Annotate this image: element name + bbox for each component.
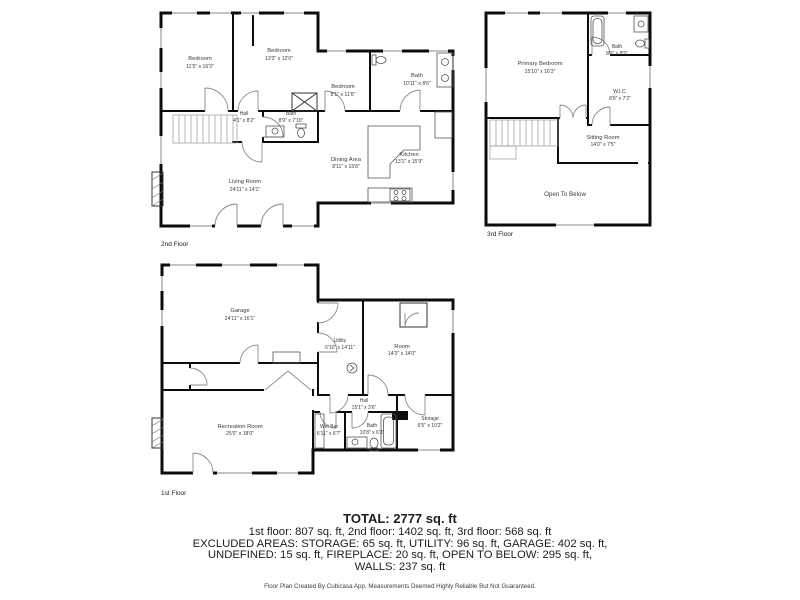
room-label-garage-name: Garage bbox=[230, 308, 249, 314]
room-label-room-dims: 14'3" x 14'0" bbox=[388, 351, 416, 357]
bath-fixtures-2f-icon bbox=[266, 53, 453, 138]
doors-2f bbox=[205, 88, 420, 226]
room-label-bath1-name: Bath bbox=[367, 423, 378, 429]
floor-plan-page: Bedroom 11'5" x 16'3" Bedroom 13'3" x 12… bbox=[0, 0, 800, 600]
doors-1f bbox=[190, 303, 425, 473]
stairs-2f-icon bbox=[173, 115, 237, 143]
interior-walls-2f bbox=[161, 13, 453, 142]
floor-plan-3rd-floor: Primary Bedroom 15'10" x 16'3" Bath 8'9"… bbox=[480, 8, 658, 251]
room-label-recreation-name: Recreation Room bbox=[217, 424, 262, 430]
room-label-bedroom1-name: Bedroom bbox=[188, 56, 212, 62]
room-label-bedroom2-dims: 13'3" x 12'0" bbox=[265, 56, 293, 62]
windows-2f bbox=[161, 13, 453, 226]
french-doors-icon bbox=[265, 371, 311, 390]
exterior-walls-2f bbox=[161, 13, 453, 226]
room-labels-2f: Bedroom 11'5" x 16'3" Bedroom 13'3" x 12… bbox=[186, 48, 431, 193]
exterior-walls-1f bbox=[162, 265, 453, 473]
floor-label-3rd: 3rd Floor bbox=[487, 231, 514, 238]
room-label-bedroom3-name: Bedroom bbox=[331, 84, 355, 90]
room-label-living-dims: 24'11" x 14'1" bbox=[230, 187, 261, 193]
total-area-line: TOTAL: 2777 sq. ft bbox=[0, 511, 800, 526]
room-label-dining-name: Dining Area bbox=[331, 157, 362, 163]
room-label-bath-hall-dims: 8'9" x 7'10" bbox=[279, 118, 304, 124]
interior-walls-3f bbox=[486, 13, 650, 163]
credit-line: Floor Plan Created By Cubicasa App. Meas… bbox=[0, 583, 800, 590]
stairs-3f-icon bbox=[490, 120, 558, 159]
room-label-wetbar-dims: 6'11" x 6'7" bbox=[317, 431, 341, 437]
room-label-sitting-dims: 14'0" x 7'5" bbox=[590, 142, 615, 148]
room-label-room-name: Room bbox=[394, 344, 410, 350]
room-label-sitting-name: Sitting Room bbox=[586, 135, 619, 141]
room-label-hall2-dims: 4'1" x 8'2" bbox=[233, 118, 255, 124]
room-label-bedroom1-dims: 11'5" x 16'3" bbox=[186, 64, 214, 70]
room-label-open-to-below: Open To Below bbox=[544, 191, 586, 198]
room-label-bath-hall-name: Bath bbox=[286, 111, 297, 117]
room-label-hall2-name: Hall bbox=[240, 111, 249, 117]
room-label-bath3-name: Bath bbox=[612, 44, 623, 50]
room-label-primary-dims: 15'10" x 16'3" bbox=[525, 69, 556, 75]
room-closet-icon bbox=[400, 303, 427, 327]
room-label-bath-main-name: Bath bbox=[411, 73, 423, 79]
closet-2f-icon bbox=[292, 93, 317, 111]
room-label-kitchen-dims: 13'1" x 15'9" bbox=[395, 159, 423, 165]
room-label-storage-name: Storage bbox=[421, 416, 439, 422]
room-label-wetbar-name: Wet Bar bbox=[320, 424, 338, 430]
room-label-hall1-name: Hall bbox=[360, 398, 369, 404]
room-label-wic-name: W.I.C. bbox=[613, 89, 627, 95]
room-label-bedroom3-dims: 8'1" x 11'6" bbox=[331, 92, 356, 98]
floor-plan-2nd-floor: Bedroom 11'5" x 16'3" Bedroom 13'3" x 12… bbox=[150, 8, 465, 251]
utility-fixtures-icon bbox=[347, 363, 357, 373]
room-labels-3f: Primary Bedroom 15'10" x 16'3" Bath 8'9"… bbox=[517, 44, 631, 198]
room-label-living-name: Living Room bbox=[229, 179, 261, 185]
room-label-bath-main-dims: 10'11" x 8'6" bbox=[403, 81, 431, 87]
floor-label-1st: 1st Floor bbox=[161, 490, 187, 497]
walls-area-line: WALLS: 237 sq. ft bbox=[0, 562, 800, 574]
doors-3f bbox=[560, 37, 610, 125]
room-label-hall1-dims: 15'1" x 3'6" bbox=[352, 405, 377, 411]
door-openings-1f bbox=[190, 303, 425, 473]
room-label-dining-dims: 8'11" x 15'8" bbox=[332, 164, 360, 170]
floor-label-2nd: 2nd Floor bbox=[161, 241, 189, 248]
floor-areas-line: 1st floor: 807 sq. ft, 2nd floor: 1402 s… bbox=[0, 527, 800, 539]
interior-walls-1f bbox=[162, 300, 453, 450]
room-label-wic-dims: 8'9" x 7'2" bbox=[609, 96, 631, 102]
room-label-recreation-dims: 25'0" x 18'0" bbox=[226, 431, 254, 437]
room-label-bedroom2-name: Bedroom bbox=[267, 48, 291, 54]
room-label-utility-name: Utility bbox=[334, 338, 347, 344]
fireplace-interior-icon bbox=[392, 411, 408, 420]
garage-step-icon bbox=[273, 352, 300, 363]
room-label-bath1-dims: 10'8" x 6'3" bbox=[360, 430, 385, 436]
room-label-kitchen-name: Kitchen bbox=[399, 152, 418, 158]
area-summary: TOTAL: 2777 sq. ft 1st floor: 807 sq. ft… bbox=[0, 511, 800, 574]
room-label-garage-dims: 24'11" x 16'1" bbox=[225, 316, 256, 322]
room-label-primary-name: Primary Bedroom bbox=[517, 61, 562, 67]
room-label-storage-dims: 6'5" x 10'2" bbox=[418, 423, 443, 429]
room-label-utility-dims: 6'10" x 14'11" bbox=[325, 345, 355, 351]
floor-plan-1st-floor: Garage 24'11" x 16'1" Utility 6'10" x 14… bbox=[150, 255, 465, 503]
windows-1f bbox=[162, 265, 453, 473]
room-label-bath3-dims: 8'9" x 8'9" bbox=[606, 51, 628, 57]
